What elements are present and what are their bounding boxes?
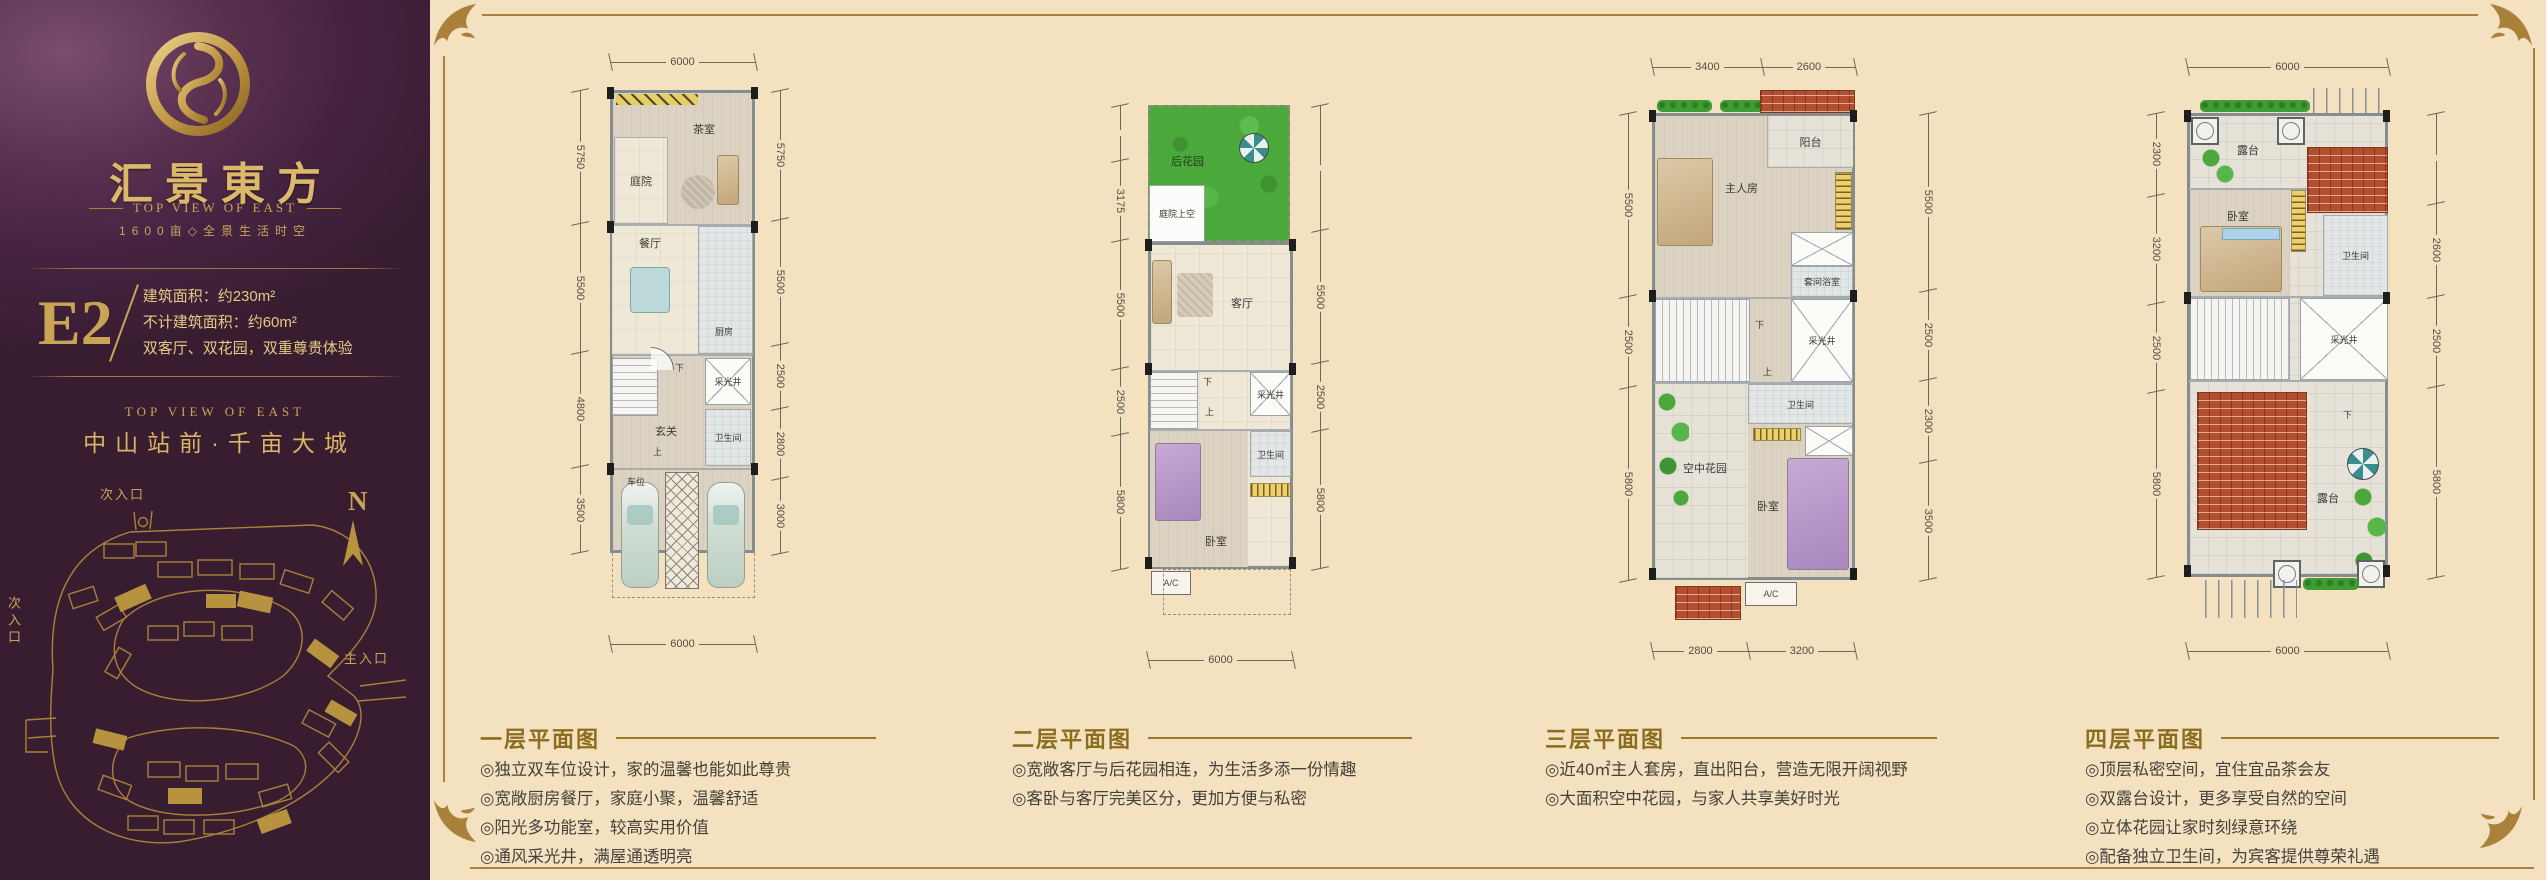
dim-label: 3200 xyxy=(1786,645,1818,657)
dim-rail-left: 5750 5500 4800 3500 xyxy=(567,90,593,553)
roof-tiles xyxy=(2307,147,2388,213)
location-en: TOP VIEW OF EAST xyxy=(0,404,430,420)
wall-column xyxy=(2383,110,2390,122)
floor-plan-3: 3400 2600 5500 2500 5800 5500 2500 2300 … xyxy=(1595,30,1960,690)
room-label-courtyard: 庭院 xyxy=(630,173,652,189)
dim-label: 2500 xyxy=(1313,381,1327,411)
wall-column xyxy=(1289,239,1296,251)
dim-label: 2800 xyxy=(1684,645,1716,657)
room-label-lightwell: 采光井 xyxy=(1808,334,1835,347)
dim-label: 6000 xyxy=(666,56,698,68)
room-label-terrace-top: 露台 xyxy=(2237,142,2259,158)
shower xyxy=(1791,232,1853,266)
wall-column xyxy=(1289,363,1296,375)
room-label-lightwell: 采光井 xyxy=(1257,388,1284,401)
unit-slash xyxy=(109,284,139,362)
dim-rail-right: 5750 5500 2500 2800 3000 xyxy=(767,90,793,553)
caption-bullet: ◎双露台设计，更多享受自然的空间 xyxy=(2085,787,2499,812)
stairs xyxy=(1150,372,1198,429)
dim-label: 2500 xyxy=(1921,320,1935,350)
dim-label: 5500 xyxy=(773,267,787,297)
caption-bullet: ◎宽敞客厅与后花园相连，为生活多添一份情趣 xyxy=(1012,758,1412,783)
unit-feature-line: 双客厅、双花园，双重尊贵体验 xyxy=(143,336,353,362)
room-bath: 卫生间 xyxy=(1748,384,1853,424)
room-ensuite: 套间浴室 xyxy=(1791,266,1853,297)
dim-label: 2500 xyxy=(2429,326,2443,356)
north-indicator: N xyxy=(348,486,368,517)
dim-label: 4800 xyxy=(573,394,587,424)
corner-ornament-icon xyxy=(2488,2,2534,48)
site-entry-main: 主入口 xyxy=(344,648,389,667)
wall-column xyxy=(2184,110,2191,122)
stairs xyxy=(2190,298,2290,380)
wall xyxy=(2189,380,2386,382)
roof-tiles xyxy=(1760,90,1855,113)
room-label-sky-garden: 空中花园 xyxy=(1683,460,1727,476)
dim-rail-right: 5500 2500 5800 xyxy=(1307,105,1333,569)
caption-bullet: ◎阳光多功能室，较高实用价值 xyxy=(480,816,876,841)
dim-rail-left: 2300 3200 2500 5800 xyxy=(2143,113,2169,577)
room-label-master: 主人房 xyxy=(1725,180,1758,196)
dim-label: 2500 xyxy=(1621,327,1635,357)
dim-label: 3175 xyxy=(1113,186,1127,216)
umbrella-icon xyxy=(1239,133,1269,163)
dim-label: 5750 xyxy=(573,142,587,172)
room-lightwell: 采光井 xyxy=(1250,372,1291,416)
label-down: 下 xyxy=(2343,408,2352,421)
wall-column xyxy=(2184,292,2191,304)
wall xyxy=(612,468,753,470)
wall-column xyxy=(1145,239,1152,251)
dim-label: 3200 xyxy=(2149,234,2163,264)
unit-code: E2 xyxy=(38,293,113,353)
dim-rail-bottom: 6000 xyxy=(610,631,755,657)
dim-label: 5800 xyxy=(2429,466,2443,496)
caption-title: 一层平面图 xyxy=(480,722,600,754)
dim-label: 2300 xyxy=(2149,139,2163,169)
room-label-lightwell: 采光井 xyxy=(714,375,741,388)
caption-header: 一层平面图 xyxy=(480,722,876,754)
divider-line xyxy=(26,268,404,269)
room-label-kitchen: 厨房 xyxy=(715,325,733,338)
subtitle-dash-left xyxy=(89,208,123,209)
dim-rail-top: 6000 xyxy=(610,49,755,75)
caption-floor-1: 一层平面图 ◎独立双车位设计，家的温馨也能如此尊贵 ◎宽敞厨房餐厅，家庭小聚，温… xyxy=(480,722,876,870)
column-planter xyxy=(2357,560,2385,588)
room-lightwell: 采光井 xyxy=(705,358,751,405)
dim-label: 5500 xyxy=(573,273,587,303)
dim-label: 2500 xyxy=(773,361,787,391)
stairs xyxy=(1655,299,1750,382)
caption-floor-3: 三层平面图 ◎近40㎡主人套房，直出阳台，营造无限开阔视野 ◎大面积空中花园，与… xyxy=(1545,722,1937,812)
dim-rail-top: 3400 2600 xyxy=(1652,54,1855,80)
room-label-bedroom: 卧室 xyxy=(2227,208,2249,224)
room-label-bath: 卫生间 xyxy=(1257,448,1284,461)
floor-plan-2: 3175 5500 2500 5800 5500 2500 5800 后花园 庭… xyxy=(1093,45,1393,685)
drive-apron xyxy=(612,553,755,598)
caption-rule xyxy=(2221,737,2499,739)
frame-line-right xyxy=(2533,48,2535,800)
unit-info: E2 建筑面积：约230m² 不计建筑面积：约60m² 双客厅、双花园，双重尊贵… xyxy=(38,282,408,364)
caption-title: 二层平面图 xyxy=(1012,722,1132,754)
wall-column xyxy=(1850,290,1857,302)
dim-label: 3000 xyxy=(773,501,787,531)
room-lightwell: 采光井 xyxy=(2300,298,2388,380)
rug xyxy=(1177,273,1213,317)
caption-title: 三层平面图 xyxy=(1545,722,1665,754)
unit-extra-area-line: 不计建筑面积：约60m² xyxy=(143,310,353,336)
wall-column xyxy=(751,463,758,475)
roof-tiles xyxy=(1675,586,1741,620)
umbrella-icon xyxy=(2347,448,2379,480)
bushes xyxy=(2201,148,2235,184)
planter-hedge xyxy=(1657,100,1712,112)
wall-column xyxy=(1145,363,1152,375)
brand-subtitle-text: TOP VIEW OF EAST xyxy=(133,200,297,216)
label-down: 下 xyxy=(1755,318,1764,331)
floor-plan-1: 6000 5750 5500 4800 3500 5750 5500 2500 … xyxy=(555,25,860,685)
wall-column xyxy=(2383,292,2390,304)
dim-label: 6000 xyxy=(2271,61,2303,73)
planter-hedge xyxy=(2200,100,2310,112)
sofa xyxy=(1152,260,1172,324)
caption-bullet: ◎宽敞厨房餐厅，家庭小聚，温馨舒适 xyxy=(480,787,876,812)
wall-column xyxy=(1289,557,1296,569)
label-up: 上 xyxy=(1205,405,1214,418)
dim-label: 3500 xyxy=(573,494,587,524)
dining-table xyxy=(630,267,670,313)
room-label-foyer: 玄关 xyxy=(655,423,677,439)
dim-label: 6000 xyxy=(1204,654,1236,666)
room-courtyard: 庭院 xyxy=(614,137,668,224)
dim-label: 6000 xyxy=(666,638,698,650)
caption-bullet: ◎顶层私密空间，宜住宜品茶会友 xyxy=(2085,758,2499,783)
wall-column xyxy=(751,87,758,99)
bed xyxy=(1787,458,1849,570)
room-label-dining: 餐厅 xyxy=(639,235,661,251)
dim-rail-bottom: 2800 3200 xyxy=(1652,638,1855,664)
dim-rail-left: 5500 2500 5800 xyxy=(1615,113,1641,580)
unit-spec-lines: 建筑面积：约230m² 不计建筑面积：约60m² 双客厅、双花园，双重尊贵体验 xyxy=(143,284,353,362)
wall-column xyxy=(1145,557,1152,569)
dim-rail-right: 5500 2500 2300 3500 xyxy=(1915,113,1941,580)
site-entry-secondary-left: 次入口 xyxy=(4,596,23,647)
label-down: 下 xyxy=(675,361,684,374)
dim-rail-bottom: 6000 xyxy=(2187,638,2388,664)
room-label-terrace: 露台 xyxy=(2317,490,2339,506)
dim-label: 2600 xyxy=(1793,61,1825,73)
room-lightwell: 采光井 xyxy=(1791,299,1853,382)
dim-rail-bottom: 6000 xyxy=(1148,647,1293,673)
wardrobe xyxy=(1250,483,1291,497)
corner-ornament-icon xyxy=(432,2,478,48)
column-planter xyxy=(2191,117,2219,145)
caption-header: 三层平面图 xyxy=(1545,722,1937,754)
dim-rail-right: 2600 2500 5800 xyxy=(2423,113,2449,577)
brand-sidebar: 汇景東方 TOP VIEW OF EAST 1600亩◇全景生活时空 E2 建筑… xyxy=(0,0,430,880)
caption-rule xyxy=(1148,737,1412,739)
dim-label: 5500 xyxy=(1313,282,1327,312)
site-plan-map xyxy=(8,470,422,870)
caption-bullet: ◎独立双车位设计，家的温馨也能如此尊贵 xyxy=(480,758,876,783)
room-courtyard-void: 庭院上空 xyxy=(1149,185,1205,242)
caption-floor-4: 四层平面图 ◎顶层私密空间，宜住宜品茶会友 ◎双露台设计，更多享受自然的空间 ◎… xyxy=(2085,722,2499,870)
brochure-canvas: 汇景東方 TOP VIEW OF EAST 1600亩◇全景生活时空 E2 建筑… xyxy=(0,0,2546,880)
wardrobe xyxy=(1835,172,1852,230)
label-up: 上 xyxy=(1763,365,1772,378)
wall-column xyxy=(1850,110,1857,122)
bed xyxy=(1155,443,1201,521)
wall-column xyxy=(751,221,758,233)
room-label-bath: 卫生间 xyxy=(714,431,741,444)
brand-subtitle: TOP VIEW OF EAST xyxy=(0,200,430,216)
floor-plan-4: 6000 2300 3200 2500 5800 2600 2500 5800 … xyxy=(2105,30,2475,690)
wall-column xyxy=(607,463,614,475)
caption-header: 四层平面图 xyxy=(2085,722,2499,754)
rug xyxy=(681,175,715,209)
dim-label: 6000 xyxy=(2271,645,2303,657)
dim-label: 5500 xyxy=(1113,290,1127,320)
site-entry-secondary-top: 次入口 xyxy=(100,484,145,503)
ac-unit: A/C xyxy=(1745,582,1797,606)
caption-bullet: ◎通风采光井，满屋通透明亮 xyxy=(480,845,876,870)
room-bath: 卫生间 xyxy=(1250,431,1291,477)
dim-label: 5800 xyxy=(1621,468,1635,498)
dim-label: 5800 xyxy=(1113,487,1127,517)
caption-bullet: ◎大面积空中花园，与家人共享美好时光 xyxy=(1545,787,1937,812)
wall-column xyxy=(2184,565,2191,577)
subtitle-dash-right xyxy=(307,208,341,209)
column-planter xyxy=(2277,117,2305,145)
dim-label: 5800 xyxy=(1313,485,1327,515)
wall-column xyxy=(1649,290,1656,302)
dim-label: 2500 xyxy=(2149,332,2163,362)
caption-bullet: ◎配备独立卫生间，为宾客提供尊荣礼遇 xyxy=(2085,845,2499,870)
wardrobe xyxy=(2291,190,2306,252)
wall-column xyxy=(1649,110,1656,122)
dim-label: 2500 xyxy=(1113,387,1127,417)
stair-hatch xyxy=(616,94,698,105)
caption-bullet: ◎立体花园让家时刻绿意环绕 xyxy=(2085,816,2499,841)
room-label-courtyard-void: 庭院上空 xyxy=(1159,207,1195,220)
dim-label: 2600 xyxy=(2429,235,2443,265)
dim-rail-left: 3175 5500 2500 5800 xyxy=(1107,105,1133,569)
room-label-living: 客厅 xyxy=(1231,295,1253,311)
caption-rule xyxy=(1681,737,1937,739)
location-cn: 中山站前·千亩大城 xyxy=(0,424,430,458)
divider-line xyxy=(26,376,404,377)
shower xyxy=(1805,426,1853,456)
caption-rule xyxy=(616,737,876,739)
garden-plants xyxy=(1657,390,1689,520)
room-balcony: 阳台 xyxy=(1767,116,1853,168)
terrace-outline xyxy=(1163,569,1291,615)
room-label-back-garden: 后花园 xyxy=(1171,153,1204,169)
room-bath: 卫生间 xyxy=(705,409,751,466)
label-up: 上 xyxy=(653,445,662,458)
room-label-bedroom: 卧室 xyxy=(1757,498,1779,514)
planter-hedge xyxy=(2303,578,2359,590)
room-bath: 卫生间 xyxy=(2323,215,2388,296)
room-label-lightwell: 采光井 xyxy=(2330,333,2357,346)
bed xyxy=(1657,158,1713,246)
wall-column xyxy=(1649,568,1656,580)
room-label-ensuite: 套间浴室 xyxy=(1804,275,1840,288)
wall-column xyxy=(607,87,614,99)
caption-title: 四层平面图 xyxy=(2085,722,2205,754)
label-down: 下 xyxy=(1203,375,1212,388)
roof-tiles xyxy=(2197,392,2307,530)
wall-column xyxy=(1850,568,1857,580)
dim-label: 3500 xyxy=(1921,506,1935,536)
room-label-bedroom: 卧室 xyxy=(1205,533,1227,549)
caption-header: 二层平面图 xyxy=(1012,722,1412,754)
caption-floor-2: 二层平面图 ◎宽敞客厅与后花园相连，为生活多添一份情趣 ◎客卧与客厅完美区分，更… xyxy=(1012,722,1412,812)
room-label-balcony: 阳台 xyxy=(1800,134,1822,150)
corner-ornament-icon xyxy=(432,798,478,844)
dim-label: 5500 xyxy=(1921,187,1935,217)
brand-tagline: 1600亩◇全景生活时空 xyxy=(0,222,430,239)
phoenix-logo-icon xyxy=(134,20,262,148)
pillow xyxy=(2222,228,2280,240)
room-label-bath: 卫生间 xyxy=(1787,398,1814,411)
bushes xyxy=(2353,485,2387,570)
ac-label: A/C xyxy=(1763,589,1778,599)
sofa xyxy=(717,155,739,205)
wardrobe xyxy=(1753,428,1801,441)
frame-line-top xyxy=(482,14,2478,16)
dim-label: 2300 xyxy=(1921,405,1935,435)
room-label-bath: 卫生间 xyxy=(2342,249,2369,262)
frame-line-left xyxy=(443,56,445,782)
caption-bullet: ◎近40㎡主人套房，直出阳台，营造无限开阔视野 xyxy=(1545,758,1937,783)
dim-label: 3400 xyxy=(1691,61,1723,73)
dim-label: 5800 xyxy=(2149,469,2163,499)
wall-column xyxy=(2383,565,2390,577)
pergola-lines xyxy=(2205,580,2297,618)
dim-label: 2800 xyxy=(773,428,787,458)
unit-area-line: 建筑面积：约230m² xyxy=(143,284,353,310)
dim-label: 5750 xyxy=(773,140,787,170)
wall-column xyxy=(607,221,614,233)
dim-label: 5500 xyxy=(1621,189,1635,219)
room-label-tea: 茶室 xyxy=(693,121,715,137)
room-label-parking: 车位 xyxy=(627,475,645,488)
wall xyxy=(612,354,753,356)
dim-rail-top: 6000 xyxy=(2187,54,2388,80)
caption-bullet: ◎客卧与客厅完美区分，更加方便与私密 xyxy=(1012,787,1412,812)
